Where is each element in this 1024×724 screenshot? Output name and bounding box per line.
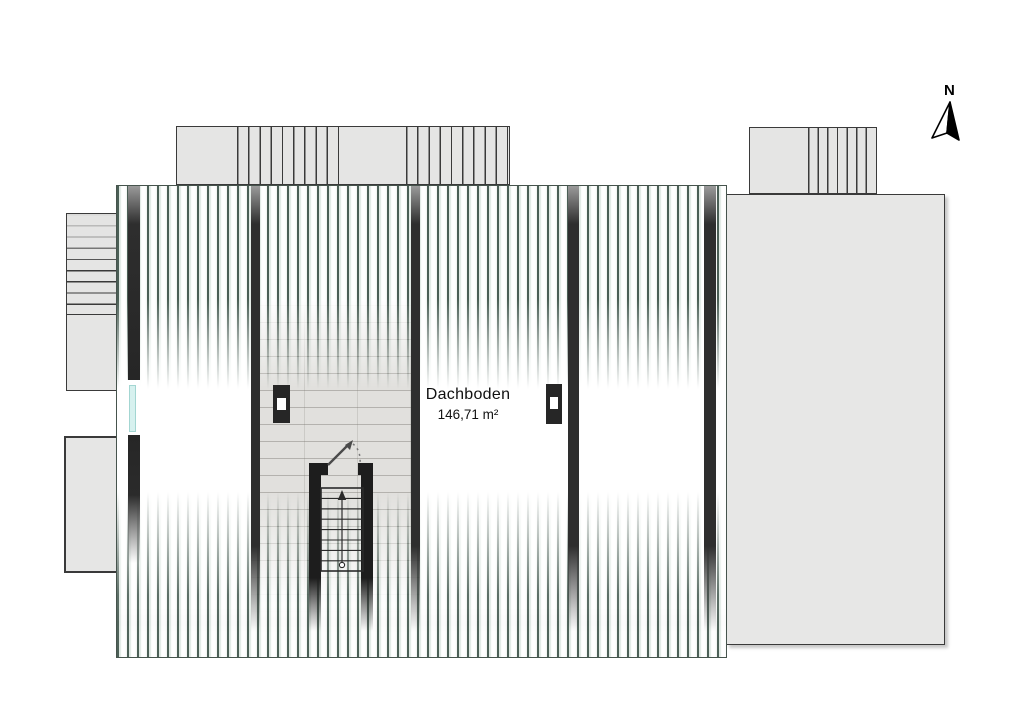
chimney-flue [550, 397, 558, 409]
interior-wall-left-upper [128, 186, 140, 380]
window-glass [129, 385, 136, 432]
interior-wall-2 [251, 186, 260, 634]
room-label: Dachboden 146,71 m² [398, 386, 538, 422]
floorplan-canvas: Dachboden 146,71 m² N [0, 0, 1024, 724]
dormer-top-right [749, 127, 877, 194]
chimney-right [546, 384, 562, 424]
room-name: Dachboden [398, 386, 538, 404]
dormer-top-left [176, 126, 510, 185]
stair-fade-overlay [67, 214, 122, 314]
door-swing-icon [322, 436, 367, 468]
dormer-window-stripes [808, 128, 875, 193]
wall-window-left [125, 380, 140, 435]
annex-left-lower [64, 436, 124, 573]
exterior-stairs-left [66, 213, 123, 391]
attic-roof: Dachboden 146,71 m² [116, 185, 727, 658]
chimney-left [273, 385, 290, 423]
staircase-icon [315, 486, 369, 576]
north-arrow-icon [920, 98, 970, 148]
north-indicator: N [920, 80, 976, 150]
room-area: 146,71 m² [398, 407, 538, 422]
dormer-window-stripes [237, 127, 339, 184]
annex-right [726, 194, 945, 645]
chimney-flue [277, 398, 286, 410]
north-label: N [944, 82, 955, 99]
interior-wall-4 [568, 186, 579, 634]
interior-wall-left-lower [128, 435, 140, 567]
interior-wall-right [704, 186, 716, 634]
exterior-stair-treads [67, 214, 122, 315]
dormer-window-stripes [406, 127, 508, 184]
